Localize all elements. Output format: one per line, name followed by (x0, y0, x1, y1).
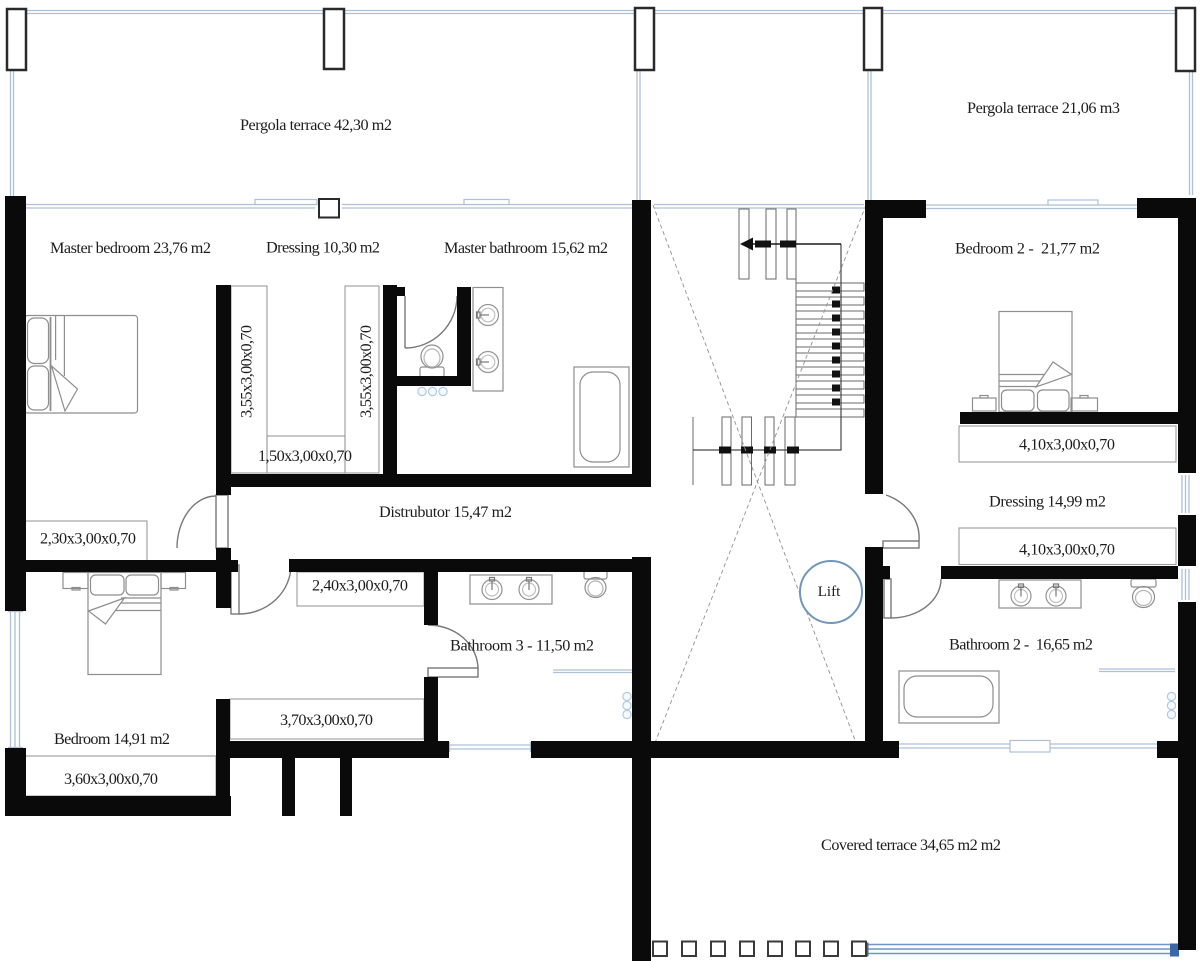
svg-text:Covered terrace 34,65 m2 m2: Covered terrace 34,65 m2 m2 (821, 836, 1001, 854)
svg-text:Bedroom 2 - 21,77 m2: Bedroom 2 - 21,77 m2 (955, 240, 1100, 258)
svg-text:3,70x3,00x0,70: 3,70x3,00x0,70 (280, 711, 373, 729)
svg-text:Dressing 14,99 m2: Dressing 14,99 m2 (989, 493, 1106, 511)
svg-text:Master bedroom 23,76 m2: Master bedroom 23,76 m2 (50, 239, 211, 257)
svg-text:Bedroom 14,91 m2: Bedroom 14,91 m2 (54, 730, 170, 748)
svg-text:3,60x3,00x0,70: 3,60x3,00x0,70 (64, 770, 158, 788)
svg-text:4,10x3,00x0,70: 4,10x3,00x0,70 (1019, 436, 1115, 454)
svg-text:4,10x3,00x0,70: 4,10x3,00x0,70 (1019, 541, 1115, 559)
svg-text:Bathroom 2 - 16,65 m2: Bathroom 2 - 16,65 m2 (949, 636, 1093, 654)
svg-text:Lift: Lift (818, 584, 841, 600)
svg-text:1,50x3,00x0,70: 1,50x3,00x0,70 (258, 447, 352, 465)
svg-text:Distrubutor 15,47 m2: Distrubutor 15,47 m2 (379, 503, 512, 521)
svg-text:Pergola terrace 21,06 m3: Pergola terrace 21,06 m3 (967, 99, 1120, 117)
svg-text:Pergola terrace 42,30 m2: Pergola terrace 42,30 m2 (240, 116, 392, 134)
svg-text:3,55x3,00x0,70: 3,55x3,00x0,70 (357, 325, 375, 418)
svg-text:2,40x3,00x0,70: 2,40x3,00x0,70 (312, 577, 408, 595)
svg-text:Master bathroom 15,62 m2: Master bathroom 15,62 m2 (444, 239, 608, 257)
svg-text:Dressing 10,30 m2: Dressing 10,30 m2 (266, 239, 380, 257)
svg-text:3,55x3,00x0,70: 3,55x3,00x0,70 (238, 325, 256, 418)
svg-text:Bathroom 3 - 11,50 m2: Bathroom 3 - 11,50 m2 (450, 637, 594, 655)
svg-text:2,30x3,00x0,70: 2,30x3,00x0,70 (40, 530, 136, 548)
